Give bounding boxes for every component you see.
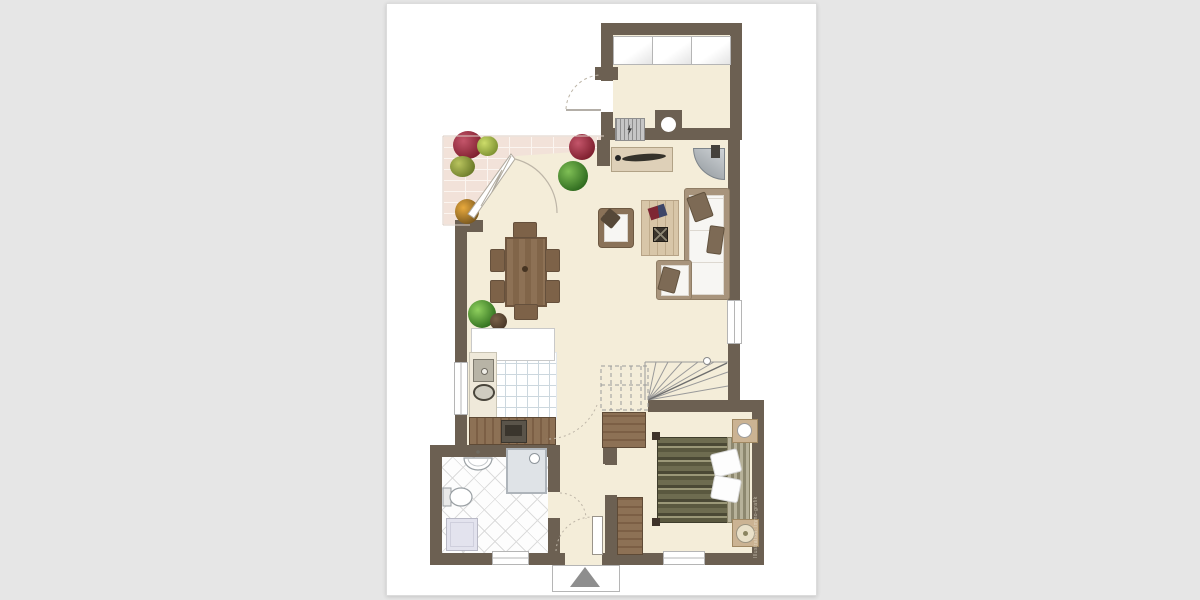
- bed-post: [652, 432, 660, 440]
- terrace-flower-icon: [455, 199, 479, 224]
- living-room-window: [727, 300, 742, 344]
- magazine-icon: [648, 204, 668, 221]
- kitchen-sink-icon: [473, 359, 494, 382]
- wall-bathroom-right-upper: [548, 447, 560, 492]
- dining-chair: [545, 280, 560, 303]
- chimney-block: [655, 110, 682, 140]
- coffee-table: [641, 200, 679, 256]
- dining-table: [505, 237, 547, 307]
- bedroom-dresser: [617, 497, 643, 555]
- terrace-shrub-icon: [450, 156, 475, 177]
- entrance-door-leaf: [592, 516, 603, 555]
- stair-base-cabinet: [602, 412, 646, 448]
- nightstand: [732, 419, 758, 443]
- shower-head-icon: [529, 453, 540, 464]
- table-knot: [522, 266, 528, 272]
- dining-chair: [513, 222, 537, 238]
- speaker-icon: [615, 155, 621, 161]
- wall-bedroom-top: [648, 400, 764, 412]
- bedroom-window: [663, 551, 705, 565]
- watermark-text: Illustration: immo-grafik: [753, 468, 764, 558]
- wall-bathroom-right-lower: [548, 518, 560, 565]
- stove-pipe-icon: [711, 145, 720, 158]
- dining-chair: [490, 249, 505, 272]
- sink-basin-icon: [473, 384, 495, 401]
- shower: [506, 448, 547, 494]
- wall-entry-stub: [595, 67, 618, 80]
- dining-chair: [545, 249, 560, 272]
- oven-icon: [501, 420, 527, 443]
- kitchen-sink-counter: [469, 352, 497, 420]
- washing-machine: [446, 518, 478, 551]
- vestibule-closet-section: [652, 36, 692, 65]
- armchair: [598, 208, 634, 248]
- screenshot-root: { "page": { "background": "#e6e6e6", "ca…: [0, 0, 1200, 600]
- kitchen-window: [454, 362, 468, 415]
- bathroom-door-opening: [548, 492, 560, 518]
- wall-bathroom-left: [430, 445, 442, 565]
- oven-door: [505, 425, 522, 436]
- terrace-shrub-icon: [477, 136, 498, 156]
- television-icon: [622, 152, 666, 162]
- lamp-bulb: [743, 531, 748, 536]
- vestibule-closet-section: [691, 36, 731, 65]
- kitchen-base-cabinets: [469, 417, 556, 445]
- dining-chair: [490, 280, 505, 303]
- wall-vestibule-top: [601, 23, 742, 35]
- wall-hall-bedroom-lower: [605, 495, 617, 553]
- chimney-flue-icon: [661, 117, 676, 132]
- vestibule-closet-section: [613, 36, 653, 65]
- decor-box-icon: [653, 227, 668, 242]
- terrace-rose-bush-icon: [569, 134, 595, 160]
- faucet-icon: [481, 368, 488, 375]
- wall-stair-stub: [603, 446, 617, 464]
- electrical-panel-icon: [615, 118, 645, 141]
- bed-post: [652, 518, 660, 526]
- bathroom-window: [492, 551, 529, 565]
- table-lamp-icon: [737, 423, 752, 438]
- kitchen-tile-floor: [493, 352, 557, 420]
- terrace-plant-icon: [558, 161, 588, 191]
- wall-terrace-corner-stub: [597, 140, 610, 166]
- bed-pillow: [710, 475, 742, 504]
- washing-machine-lid: [450, 522, 474, 547]
- tv-sideboard: [611, 147, 673, 172]
- wall-vestibule-right: [730, 23, 742, 140]
- lightning-bolt-icon: [626, 124, 633, 135]
- dining-chair: [514, 304, 538, 320]
